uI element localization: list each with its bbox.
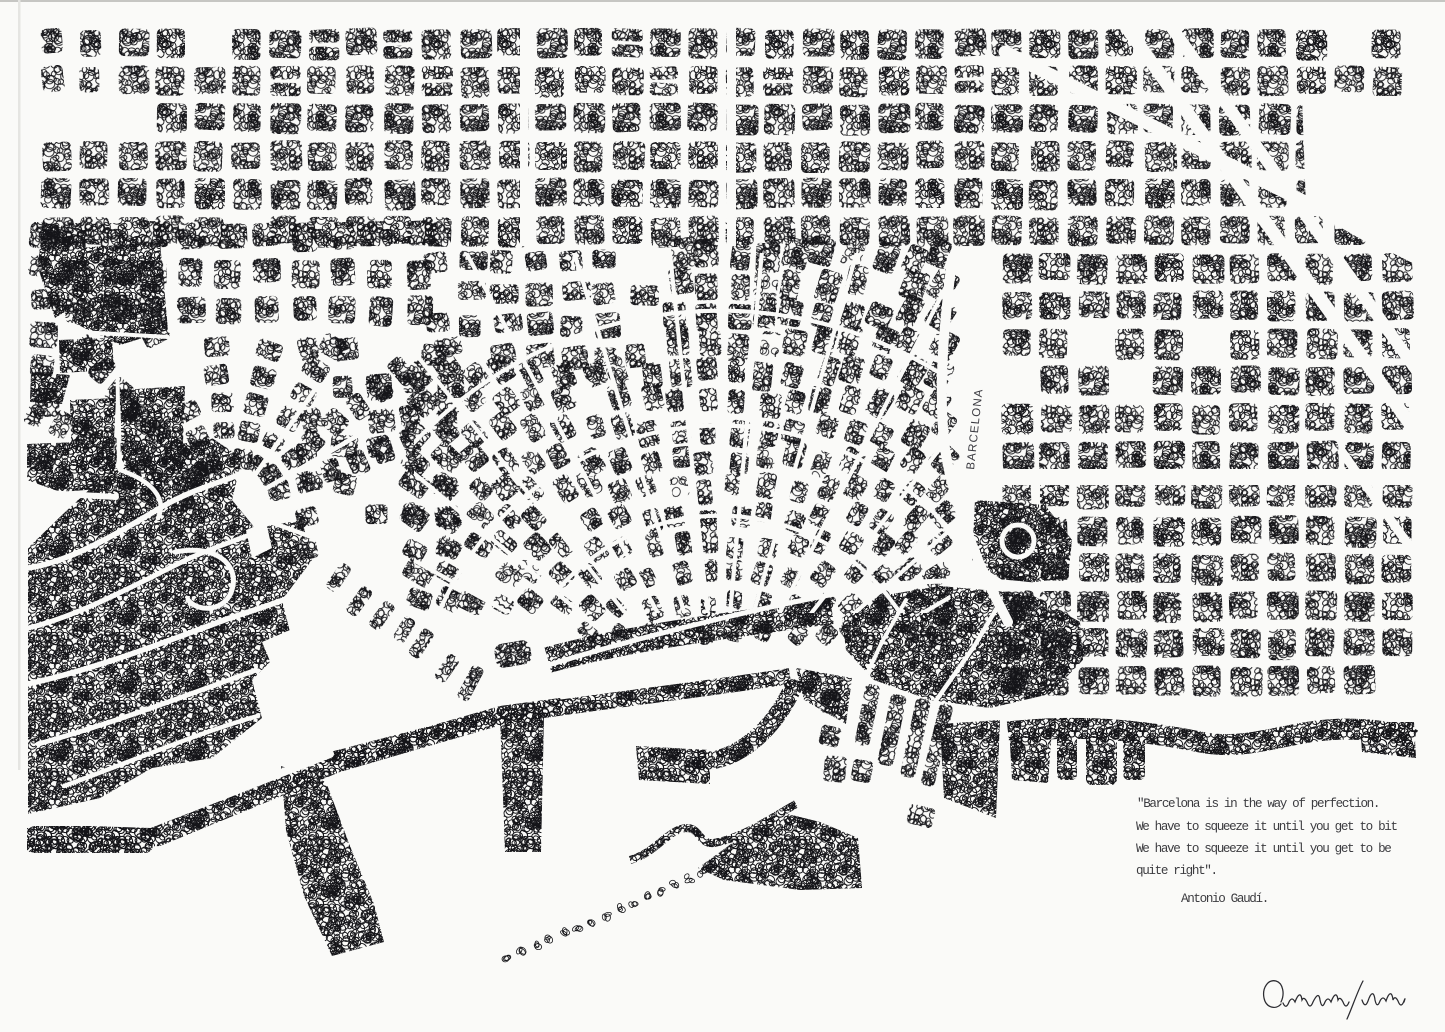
svg-text:We have to squeeze it until yo: We have to squeeze it until you get to b… [1136, 820, 1398, 834]
svg-text:"Barcelona is in the way of pe: "Barcelona is in the way of perfection. [1137, 797, 1379, 811]
svg-text:We have to squeeze it until yo: We have to squeeze it until you get to b… [1136, 842, 1391, 856]
svg-text:Antonio Gaudí.: Antonio Gaudí. [1181, 892, 1268, 906]
svg-text:quite right".: quite right". [1136, 864, 1217, 878]
